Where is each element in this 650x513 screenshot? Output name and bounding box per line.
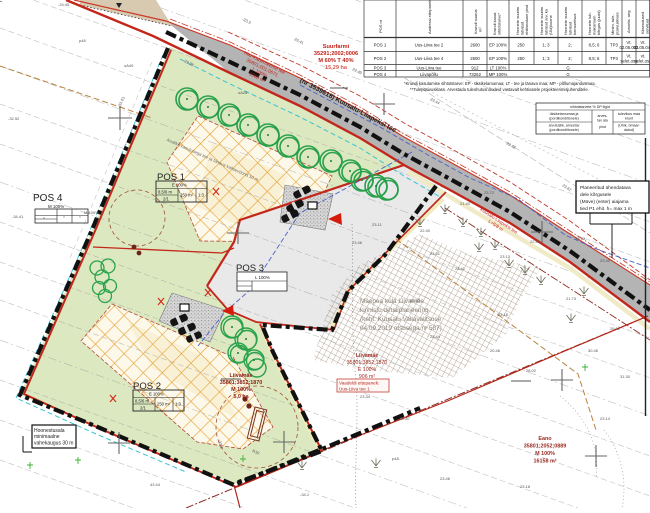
svg-text:selet.osa: selet.osa [634, 59, 650, 64]
svg-text:5,0 ha: 5,0 ha [233, 394, 249, 400]
svg-text:23.18: 23.18 [498, 312, 509, 317]
svg-text:pind: pind [599, 125, 606, 129]
svg-text:35291;2002;0006: 35291;2002;0006 [314, 51, 358, 57]
svg-text:2/1: 2/1 [163, 197, 169, 202]
svg-text:2600: 2600 [470, 56, 480, 61]
svg-text:Uus-Liiva tee 1: Uus-Liiva tee 1 [339, 387, 370, 392]
svg-text:p48: p48 [79, 38, 86, 43]
svg-text:Uus-Liiva tee 2: Uus-Liiva tee 2 [415, 43, 444, 48]
svg-text:23.87: 23.87 [410, 298, 421, 303]
svg-text:püsivusklass: püsivusklass [615, 12, 620, 35]
svg-text:(Müve) (enter) aiajama: (Müve) (enter) aiajama [580, 199, 629, 205]
svg-text:31.30: 31.30 [620, 374, 631, 379]
svg-text:2600: 2600 [470, 43, 480, 48]
svg-text:TP3: TP3 [610, 43, 618, 48]
svg-text:Amortis. aeg: Amortis. aeg [626, 11, 631, 33]
svg-text:-34.1: -34.1 [300, 492, 310, 497]
svg-text:krunt: krunt [625, 117, 633, 121]
svg-text:8,5/6 m: 8,5/6 m [135, 399, 149, 404]
svg-text:tav ala: tav ala [597, 119, 608, 123]
svg-text:EP 100%: EP 100% [489, 56, 507, 61]
svg-text:arves-: arves- [598, 114, 609, 118]
svg-text:35801;2052;0889: 35801;2052;0889 [524, 444, 567, 450]
svg-text:TP3: TP3 [610, 56, 618, 61]
svg-text:Liivapõllu: Liivapõllu [420, 72, 439, 77]
svg-text:POS 3: POS 3 [374, 66, 387, 71]
svg-text:912: 912 [471, 66, 479, 71]
svg-text:E 100%: E 100% [172, 183, 187, 188]
svg-text:-32.52: -32.52 [8, 116, 20, 121]
svg-text:Aadressi ettepanek: Aadressi ettepanek [427, 0, 432, 34]
svg-text:30.46: 30.46 [588, 348, 599, 353]
svg-text:23.11: 23.11 [372, 222, 382, 227]
svg-text:16158 m²: 16158 m² [533, 459, 556, 465]
svg-text:250 m²: 250 m² [157, 402, 171, 407]
svg-text:Vaadeldi ettepanek:: Vaadeldi ettepanek: [339, 381, 379, 386]
svg-text:(Üld)hoone: (Üld)hoone [548, 14, 553, 35]
svg-text:POS 2: POS 2 [374, 56, 387, 61]
svg-text:arvutuslik, arvestav: arvutuslik, arvestav [549, 124, 580, 128]
svg-text:23.18: 23.18 [520, 484, 531, 489]
svg-text:minimaalne: minimaalne [34, 434, 60, 440]
svg-text:M 100%: M 100% [84, 210, 99, 215]
svg-text:15.29 ha: 15.29 ha [325, 65, 348, 71]
svg-text:1:3: 1:3 [198, 193, 204, 198]
svg-text:23.72: 23.72 [484, 190, 495, 195]
svg-text:p48.: p48. [392, 456, 400, 461]
svg-text:(Ühik, ümaar-: (Ühik, ümaar- [618, 124, 641, 128]
svg-text:23.13: 23.13 [500, 254, 511, 259]
svg-text:Uus-Liiva tee 4: Uus-Liiva tee 4 [415, 56, 444, 61]
svg-text:M 100%: M 100% [231, 387, 251, 393]
svg-text:tied P1 ehit. h= max 1 m: tied P1 ehit. h= max 1 m [580, 206, 632, 212]
svg-text:23.44: 23.44 [430, 334, 441, 339]
svg-text:Eano: Eano [538, 436, 552, 442]
svg-text:8,5; 6: 8,5; 6 [589, 56, 600, 61]
svg-text:dele kõrgusele: dele kõrgusele [580, 192, 612, 198]
svg-text:21.73: 21.73 [566, 296, 577, 301]
svg-text:servituut: servituut [645, 18, 650, 34]
svg-text:2;: 2; [568, 56, 572, 61]
svg-text:23.46: 23.46 [352, 240, 363, 245]
svg-text:Uus-Liiva tee: Uus-Liiva tee [416, 66, 442, 71]
svg-text:43.44: 43.44 [150, 482, 161, 487]
svg-text:sihtotstarvete % DP liigid: sihtotstarvete % DP liigid [570, 105, 610, 109]
svg-text:23.41: 23.41 [455, 266, 466, 271]
svg-text:(pordikondiitonele): (pordikondiitonele) [549, 128, 579, 132]
svg-text:(pordikondiitonele): (pordikondiitonele) [549, 117, 579, 121]
svg-text:oA28: oA28 [238, 90, 248, 95]
svg-text:Planeeritud ühendatava: Planeeritud ühendatava [580, 185, 631, 191]
svg-text:tulevikus maa: tulevikus maa [618, 112, 640, 116]
svg-text:POS 4: POS 4 [374, 72, 387, 77]
svg-text:02.05.041: 02.05.041 [633, 45, 650, 50]
svg-text:M 100%: M 100% [48, 204, 64, 209]
svg-text:m²: m² [478, 27, 483, 32]
svg-text:Liivamäe: Liivamäe [356, 353, 378, 359]
svg-text:20.46: 20.46 [490, 348, 501, 353]
svg-text:vahekaugus 30 m: vahekaugus 30 m [34, 441, 73, 447]
svg-text:LT 100%: LT 100% [490, 66, 507, 71]
svg-text:1; 3: 1; 3 [542, 43, 550, 48]
svg-text:04.09.2019 otsusega nr 587): 04.09.2019 otsusega nr 587) [360, 325, 442, 332]
svg-text:23.01: 23.01 [430, 251, 441, 256]
svg-text:POS 1: POS 1 [374, 43, 387, 48]
svg-text:35801;3852;1870: 35801;3852;1870 [347, 360, 388, 366]
svg-text:250 m²: 250 m² [180, 193, 194, 198]
svg-text:33.73: 33.73 [575, 236, 586, 241]
svg-text:EP 100%: EP 100% [489, 43, 507, 48]
svg-text:(keht. Kuusalu Vallavalitsuse: (keht. Kuusalu Vallavalitsuse [360, 316, 442, 323]
svg-text:**Tulepüsivusklass. Arvestada: **Tulepüsivusklass. Arvestada tuleohutus… [410, 87, 589, 92]
svg-text:26.02: 26.02 [610, 326, 621, 331]
svg-text:73262: 73262 [469, 72, 482, 77]
svg-text:21.40: 21.40 [460, 201, 471, 206]
svg-text:datud): datud) [624, 128, 634, 132]
svg-text:oA49: oA49 [124, 63, 134, 68]
svg-text:M 60% T 40%: M 60% T 40% [318, 58, 353, 64]
svg-text:250: 250 [517, 43, 525, 48]
svg-text:kinnistu detailplaneering: kinnistu detailplaneering [360, 307, 429, 314]
svg-text:8,5; 6: 8,5; 6 [589, 43, 600, 48]
svg-text:Liivamäe: Liivamäe [229, 373, 252, 379]
svg-text:1:3: 1:3 [175, 402, 181, 407]
svg-text:28.02: 28.02 [526, 368, 537, 373]
svg-text:E 100%: E 100% [358, 367, 377, 373]
svg-text:kõrgus (juurd): kõrgus (juurd) [596, 10, 601, 35]
svg-text:POS nr: POS nr [378, 19, 383, 33]
svg-text:üksikelamumaa ja: üksikelamumaa ja [550, 112, 579, 116]
svg-text:250: 250 [517, 56, 525, 61]
svg-text:M 100%: M 100% [535, 451, 555, 457]
svg-text:2;: 2; [568, 43, 572, 48]
svg-text:22.41: 22.41 [530, 239, 541, 244]
svg-text:*Krundi kasutamise sihtotstarv: *Krundi kasutamise sihtotstarve: EP - ük… [404, 81, 596, 86]
svg-text:-34.41: -34.41 [12, 214, 24, 219]
svg-text:korruselisus: korruselisus [572, 14, 577, 35]
svg-text:8,5/6 m: 8,5/6 m [158, 190, 172, 195]
svg-text:1; 3: 1; 3 [542, 56, 550, 61]
svg-text:2/1: 2/1 [140, 406, 146, 411]
svg-text:23.40: 23.40 [600, 258, 611, 263]
svg-text:MP 100%: MP 100% [489, 72, 508, 77]
svg-text:23.34: 23.34 [360, 394, 371, 399]
svg-text:35801;3852;1870: 35801;3852;1870 [220, 380, 263, 386]
svg-text:-24.45: -24.45 [58, 2, 70, 7]
svg-text:22.40: 22.40 [420, 228, 431, 233]
svg-text:POS 4: POS 4 [33, 193, 63, 204]
svg-text:E 100%: E 100% [149, 392, 164, 397]
svg-text:23.14: 23.14 [600, 416, 611, 421]
svg-text:ehitisealune pind: ehitisealune pind [524, 5, 529, 35]
svg-text:22.87: 22.87 [400, 416, 411, 421]
svg-text:L 100%: L 100% [255, 275, 270, 280]
svg-text:23.46: 23.46 [440, 476, 451, 481]
svg-text:sihtotstarve*: sihtotstarve* [497, 13, 502, 35]
svg-text:Suurfarmi: Suurfarmi [323, 44, 350, 50]
